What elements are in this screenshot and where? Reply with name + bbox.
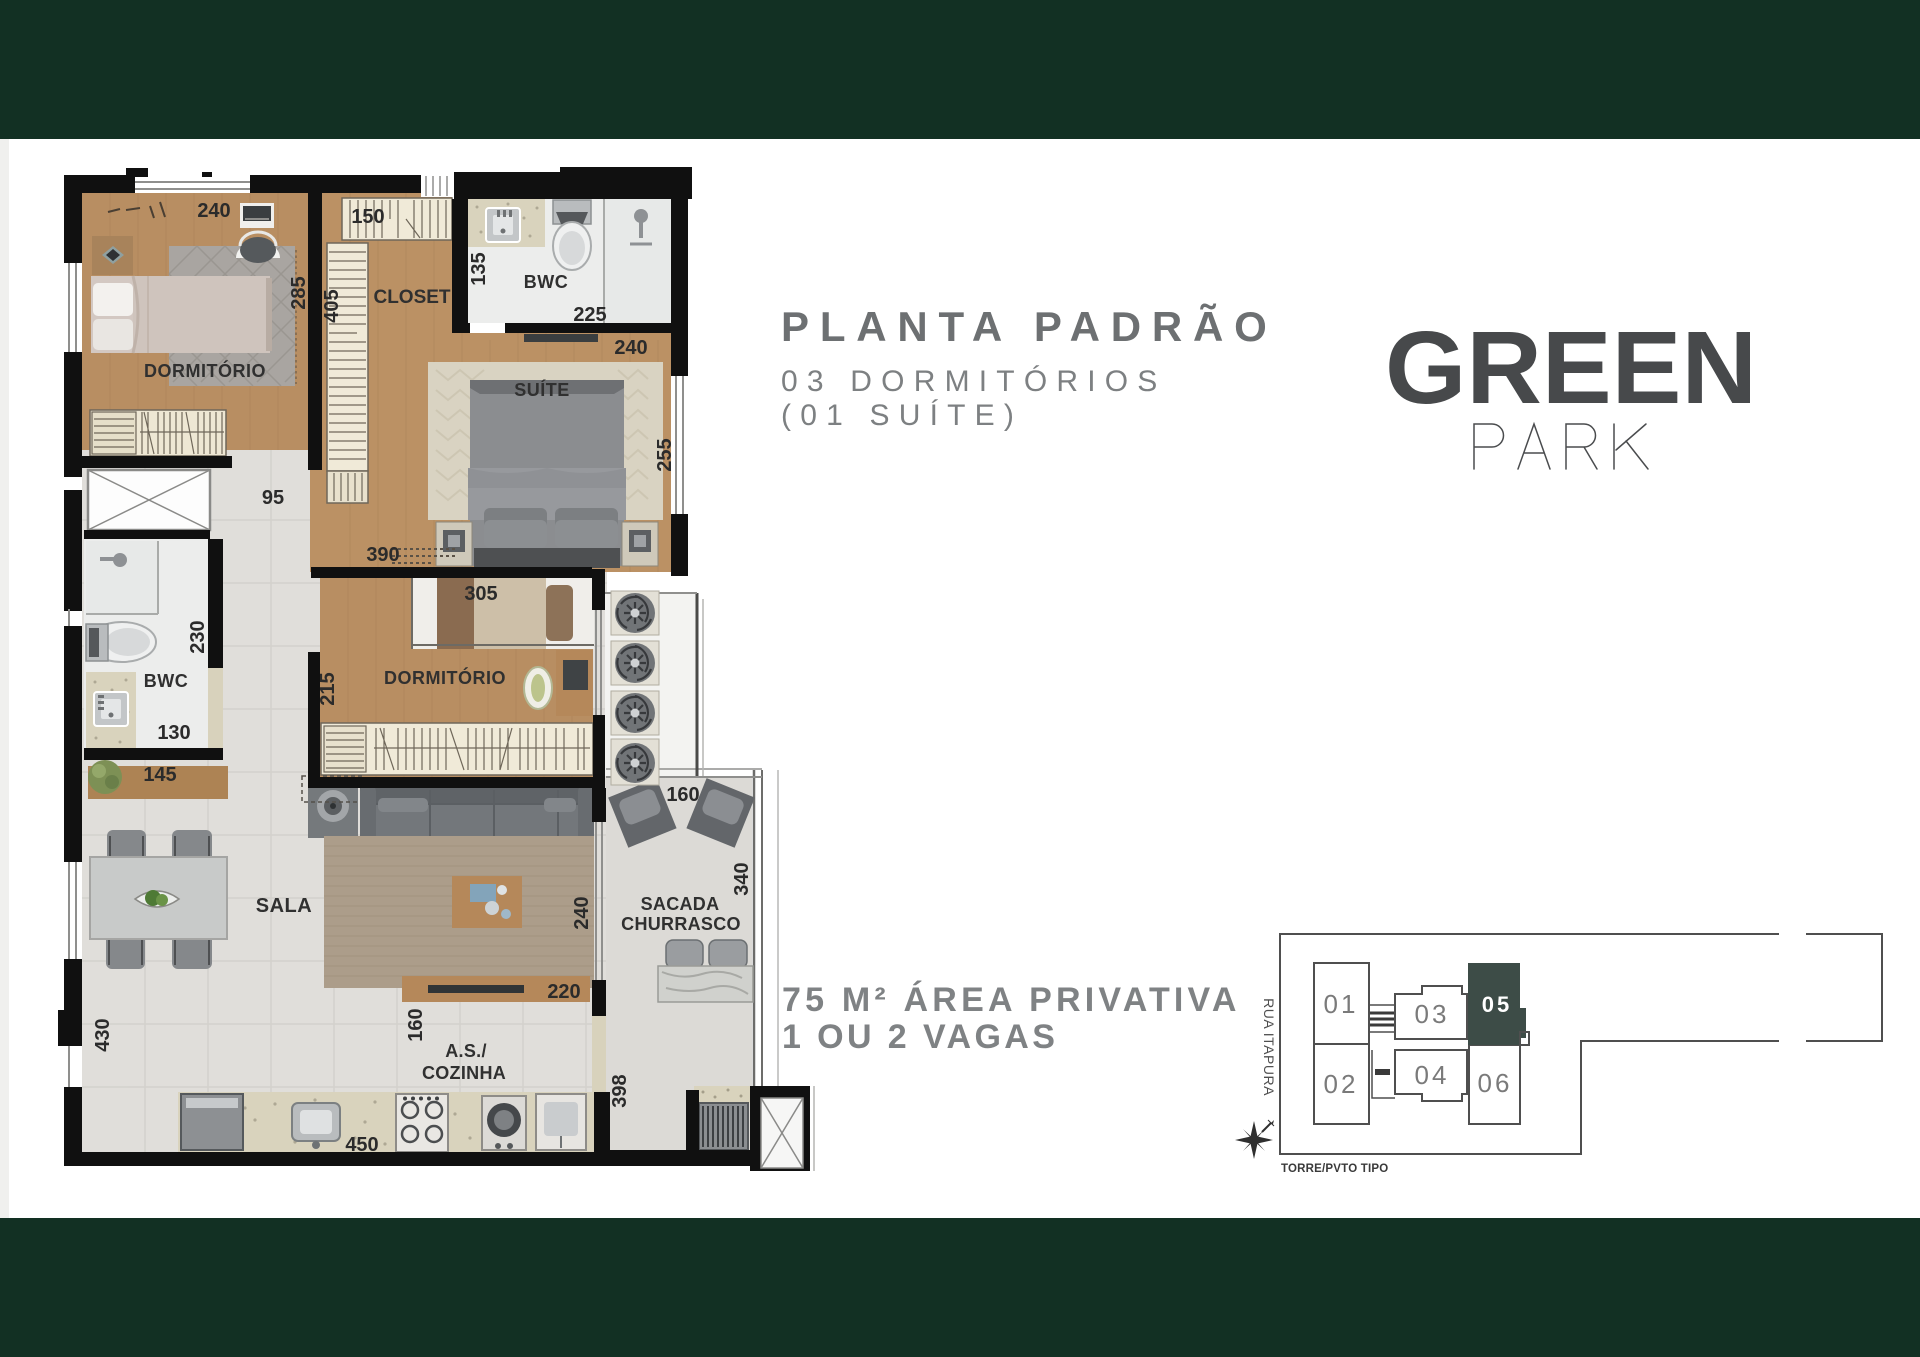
svg-text:145: 145	[143, 764, 176, 786]
svg-text:DORMITÓRIO: DORMITÓRIO	[384, 667, 506, 688]
svg-text:03: 03	[1415, 999, 1450, 1029]
svg-text:130: 130	[157, 722, 190, 744]
svg-text:PLANTA PADRÃO: PLANTA PADRÃO	[781, 303, 1278, 350]
svg-text:SACADA: SACADA	[641, 894, 720, 914]
svg-text:230: 230	[187, 620, 209, 653]
svg-text:150: 150	[351, 206, 384, 228]
svg-text:1 OU 2 VAGAS: 1 OU 2 VAGAS	[782, 1018, 1058, 1056]
svg-text:06: 06	[1478, 1068, 1513, 1098]
svg-text:SUÍTE: SUÍTE	[514, 379, 570, 400]
svg-text:95: 95	[262, 487, 284, 509]
svg-text:A.S./: A.S./	[445, 1041, 487, 1061]
svg-text:255: 255	[654, 438, 676, 471]
svg-text:225: 225	[573, 304, 606, 326]
svg-text:RUA ITAPURA: RUA ITAPURA	[1261, 998, 1277, 1096]
svg-text:430: 430	[92, 1018, 114, 1051]
svg-text:340: 340	[731, 862, 753, 895]
svg-text:405: 405	[321, 289, 343, 322]
svg-text:DORMITÓRIO: DORMITÓRIO	[144, 360, 266, 381]
svg-text:135: 135	[468, 252, 490, 285]
svg-text:TORRE/PVTO TIPO: TORRE/PVTO TIPO	[1281, 1163, 1388, 1175]
svg-text:240: 240	[614, 337, 647, 359]
svg-text:220: 220	[547, 981, 580, 1003]
svg-text:03 DORMITÓRIOS: 03 DORMITÓRIOS	[781, 365, 1167, 398]
svg-text:(01 SUÍTE): (01 SUÍTE)	[781, 399, 1023, 432]
svg-text:CHURRASCO: CHURRASCO	[621, 914, 741, 934]
svg-text:01: 01	[1324, 989, 1359, 1019]
svg-text:240: 240	[197, 200, 230, 222]
svg-text:285: 285	[288, 276, 310, 309]
svg-text:160: 160	[405, 1008, 427, 1041]
svg-text:75 M² ÁREA PRIVATIVA: 75 M² ÁREA PRIVATIVA	[782, 981, 1241, 1019]
svg-text:BWC: BWC	[524, 272, 569, 292]
svg-text:398: 398	[609, 1074, 631, 1107]
svg-text:215: 215	[317, 672, 339, 705]
svg-text:05: 05	[1482, 992, 1512, 1017]
svg-text:04: 04	[1415, 1060, 1450, 1090]
svg-text:390: 390	[366, 544, 399, 566]
svg-text:SALA: SALA	[256, 895, 312, 917]
svg-text:160: 160	[666, 784, 699, 806]
svg-text:02: 02	[1324, 1069, 1359, 1099]
svg-text:450: 450	[345, 1134, 378, 1156]
svg-text:240: 240	[571, 896, 593, 929]
svg-text:CLOSET: CLOSET	[373, 287, 450, 308]
svg-text:BWC: BWC	[144, 671, 189, 691]
svg-text:COZINHA: COZINHA	[422, 1063, 506, 1083]
svg-text:GREEN: GREEN	[1385, 310, 1757, 425]
svg-text:305: 305	[464, 583, 497, 605]
